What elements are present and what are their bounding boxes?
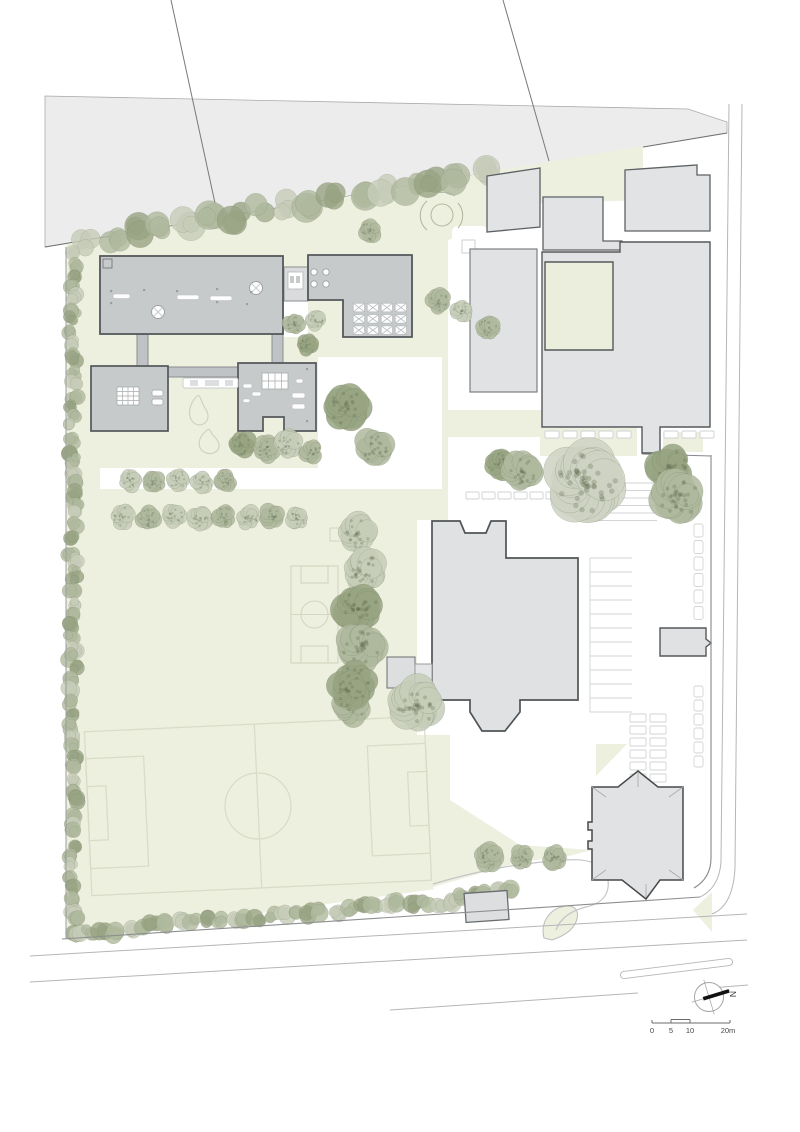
bench-mark <box>205 380 219 386</box>
existing-building <box>543 197 622 250</box>
rooflight <box>210 296 232 301</box>
roof-dome <box>323 269 329 275</box>
bike-rack-row <box>563 431 577 438</box>
bike-rack-row <box>530 492 543 499</box>
roadside-stalls <box>694 742 703 753</box>
bike-rack-row <box>664 431 678 438</box>
roof-ticks <box>110 290 112 292</box>
rooflight <box>177 295 199 300</box>
bike-rack-row <box>545 431 559 438</box>
bike-rack-grid <box>650 762 666 770</box>
bike-rack-grid <box>650 726 666 734</box>
scale-label-20m: 20m <box>721 1026 736 1035</box>
bike-rack-grid <box>630 714 646 722</box>
roadside-stalls <box>694 756 703 767</box>
existing-building <box>625 165 710 231</box>
tree <box>143 471 165 492</box>
roof-dome <box>311 269 317 275</box>
roof-ticks <box>143 289 145 291</box>
roadside-stalls <box>694 590 703 603</box>
roof-ticks <box>110 302 112 304</box>
roadside-stalls <box>694 607 703 620</box>
scale-label-5: 5 <box>669 1026 673 1035</box>
link-mark <box>296 276 300 283</box>
scale-bar: 0 5 10 20m <box>650 1020 735 1036</box>
rooflight <box>243 384 252 388</box>
roof-ticks <box>216 301 218 303</box>
site-east-boundary <box>694 455 711 888</box>
roof-ticks <box>306 420 308 422</box>
road-edge-east <box>712 104 742 914</box>
plan-drawing <box>30 0 748 1010</box>
roof-dome <box>323 281 329 287</box>
rooflight <box>292 393 305 398</box>
roof-ticks <box>246 303 248 305</box>
green-strip <box>448 410 543 437</box>
roof-ticks <box>176 290 178 292</box>
bike-rack-row <box>581 431 595 438</box>
roof-ticks <box>306 368 308 370</box>
roof-dome <box>311 281 317 287</box>
bike-rack-row <box>682 431 696 438</box>
roof-ticks <box>250 291 252 293</box>
site-plan-page: N 0 5 10 20m <box>0 0 800 1132</box>
bike-rack-row <box>617 431 631 438</box>
south-building <box>588 771 683 899</box>
existing-building <box>487 168 540 232</box>
corridor <box>272 333 283 365</box>
roadside-stalls <box>694 700 703 711</box>
roadside-stalls <box>694 686 703 697</box>
bike-rack-row <box>498 492 511 499</box>
green-triangle <box>596 744 627 776</box>
roadside-stalls <box>694 728 703 739</box>
bike-rack-row <box>700 431 714 438</box>
tree <box>282 314 306 334</box>
tree <box>511 845 534 870</box>
rooflight <box>296 379 303 383</box>
shed <box>464 890 509 922</box>
corridor <box>167 367 239 377</box>
courtyard-green <box>545 262 613 350</box>
bike-rack-grid <box>630 762 646 770</box>
green-corner <box>693 892 712 932</box>
roadside-stalls <box>694 574 703 587</box>
bike-rack-row <box>482 492 495 499</box>
bench-mark <box>225 380 233 386</box>
scale-label-10: 10 <box>686 1026 694 1035</box>
rooflight <box>152 399 163 405</box>
bike-rack-grid <box>650 738 666 746</box>
bike-rack-grid <box>630 726 646 734</box>
garage <box>660 628 711 656</box>
tree <box>450 300 472 322</box>
bike-rack-grid <box>650 774 666 782</box>
roadside-stalls <box>694 557 703 570</box>
road-lane-line <box>390 993 638 1010</box>
rooflight <box>292 404 305 409</box>
bike-rack-row <box>514 492 527 499</box>
north-arrow: N <box>687 973 738 1019</box>
scale-label-0: 0 <box>650 1026 654 1035</box>
bike-rack-row <box>599 431 613 438</box>
bike-rack-grid <box>630 738 646 746</box>
rooflight <box>113 294 130 299</box>
tree <box>500 451 543 491</box>
bike-rack-grid <box>650 714 666 722</box>
rooflight <box>152 390 163 396</box>
bench-mark <box>190 380 198 386</box>
rooflight <box>243 399 250 403</box>
tree <box>285 507 307 529</box>
gym-hall <box>432 521 578 731</box>
link-mark <box>290 276 294 283</box>
corridor <box>137 333 148 368</box>
roof-ticks <box>216 288 218 290</box>
roadside-stalls <box>694 714 703 725</box>
north-label: N <box>728 991 738 997</box>
bike-rack-grid <box>630 750 646 758</box>
roadside-stalls <box>694 524 703 537</box>
roadside-stalls <box>694 541 703 554</box>
bike-rack-grid <box>650 750 666 758</box>
rooflight <box>252 392 261 396</box>
site-plan-canvas: N 0 5 10 20m <box>0 0 800 1132</box>
bike-rack-row <box>466 492 479 499</box>
